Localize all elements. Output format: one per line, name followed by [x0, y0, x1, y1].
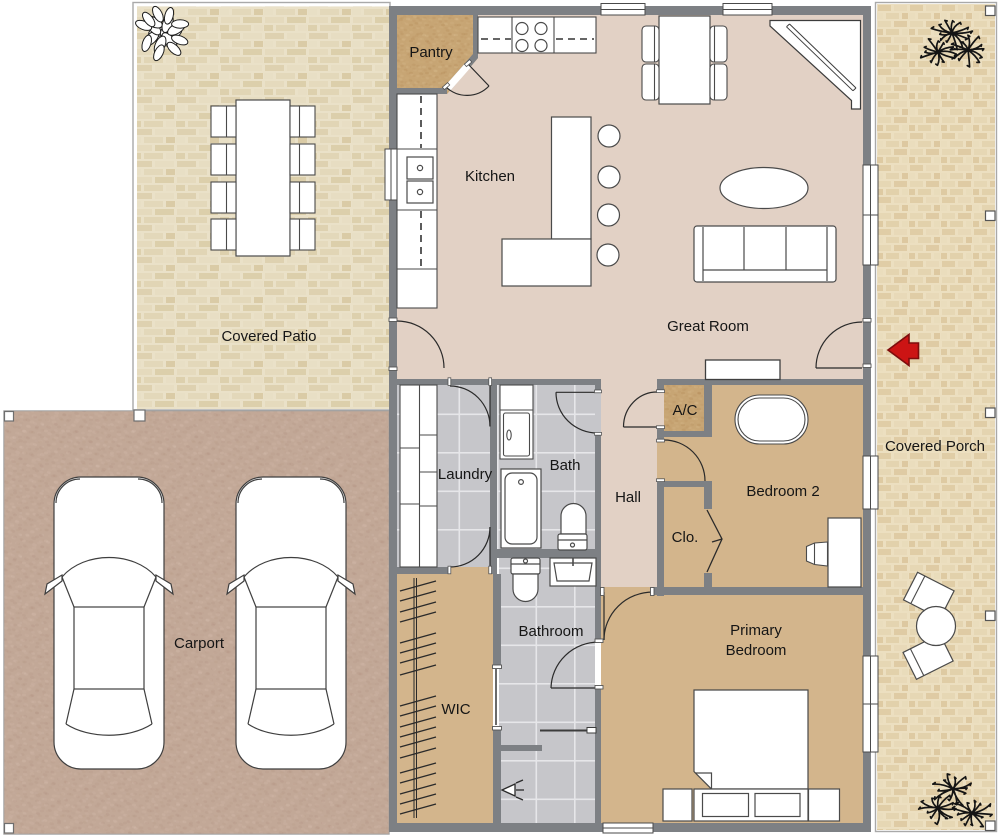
svg-text:Primary: Primary	[730, 622, 782, 639]
svg-text:Laundry: Laundry	[438, 466, 493, 483]
svg-text:Bath: Bath	[550, 457, 581, 474]
svg-text:Carport: Carport	[174, 635, 225, 652]
svg-text:WIC: WIC	[441, 701, 470, 718]
svg-text:Hall: Hall	[615, 489, 641, 506]
svg-text:Pantry: Pantry	[409, 44, 453, 61]
svg-text:Covered Patio: Covered Patio	[221, 328, 316, 345]
svg-text:A/C: A/C	[672, 402, 697, 419]
svg-text:Great Room: Great Room	[667, 318, 749, 335]
svg-text:Bathroom: Bathroom	[518, 623, 583, 640]
svg-text:Covered Porch: Covered Porch	[885, 438, 985, 455]
svg-text:Bedroom 2: Bedroom 2	[746, 483, 819, 500]
svg-text:Clo.: Clo.	[672, 529, 699, 546]
svg-text:Bedroom: Bedroom	[726, 642, 787, 659]
svg-text:Kitchen: Kitchen	[465, 168, 515, 185]
